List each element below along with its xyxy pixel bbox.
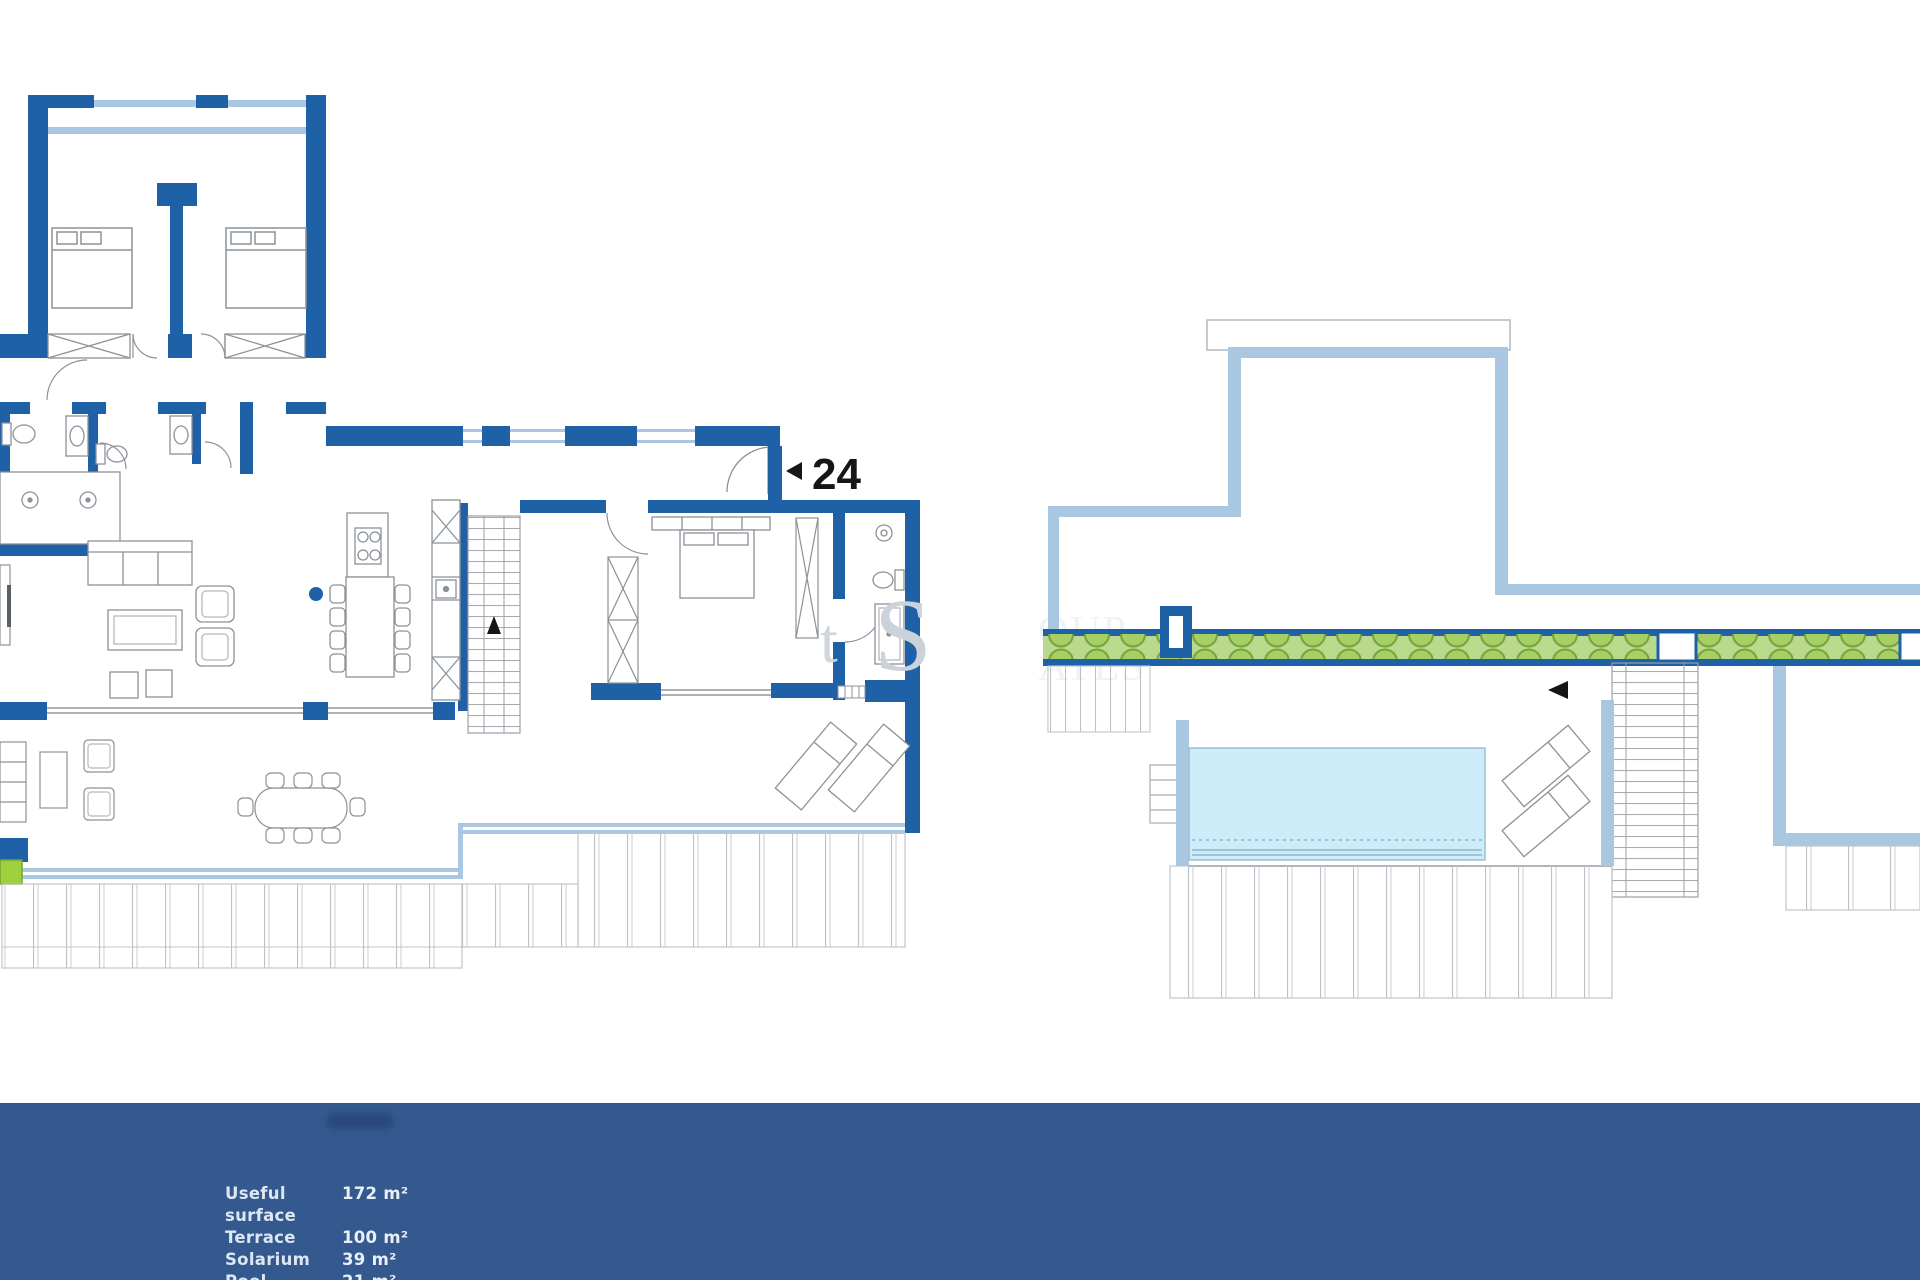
- entrance-door: [727, 446, 782, 502]
- terrace-daybed: [0, 742, 26, 822]
- solarium-parapet: [1207, 320, 1510, 350]
- solarium-right-wall: [1601, 700, 1614, 866]
- master-bed: [652, 517, 770, 598]
- wardrobe-right-bedroom: [225, 334, 305, 358]
- floor-plan-page: 24: [0, 0, 1920, 1280]
- bed-double-left: [52, 228, 132, 308]
- poufs: [110, 670, 172, 698]
- pool-side-wall: [1176, 720, 1189, 866]
- chimney-block: [1160, 606, 1192, 658]
- toilet-2: [96, 444, 127, 464]
- solarium-plan: [1043, 320, 1920, 998]
- stat-row-useful-surface: Useful surface 172 m²: [225, 1183, 408, 1227]
- footer-logo-watermark: [327, 1113, 393, 1129]
- watermark-fragment: t: [820, 605, 838, 676]
- stat-row-solarium: Solarium 39 m²: [225, 1249, 408, 1271]
- unit-number-label: 24: [812, 450, 861, 499]
- floor-plan-drawing: 24: [0, 0, 1920, 1103]
- solarium-right-enclosure: [1773, 666, 1920, 910]
- solarium-main-decking: [1170, 866, 1612, 998]
- left-floor-plan: 24: [0, 95, 920, 968]
- terrace-decking: [2, 833, 905, 968]
- footer-band: Useful surface 172 m² Terrace 100 m² Sol…: [0, 1103, 1920, 1280]
- surface-stats: Useful surface 172 m² Terrace 100 m² Sol…: [225, 1183, 408, 1280]
- coffee-table: [108, 610, 182, 650]
- hedge-opening: [1900, 632, 1920, 661]
- stat-label: Pool: [225, 1271, 342, 1280]
- tv-unit: [0, 565, 11, 645]
- kitchen-units: [432, 500, 460, 700]
- stat-label: Terrace: [225, 1227, 342, 1249]
- bed-double-right: [226, 228, 306, 308]
- terrace-side-table: [40, 752, 67, 808]
- hedge-opening: [1658, 632, 1696, 661]
- dining-table-indoor: [330, 577, 410, 677]
- solarium-left-deck: [1048, 666, 1150, 732]
- wardrobe-left-bedroom: [48, 334, 130, 358]
- solarium-loungers: [1502, 725, 1590, 856]
- pool-steps: [1150, 765, 1178, 823]
- hedge-planter-band: [1043, 606, 1920, 666]
- column-dot: [309, 587, 323, 601]
- toilet-1: [2, 423, 35, 445]
- stat-value: 21 m²: [342, 1271, 397, 1280]
- stat-value: 172 m²: [342, 1183, 408, 1227]
- solarium-outline-walls: [1048, 347, 1920, 637]
- entrance-direction-arrow-icon: [786, 462, 802, 480]
- sofa: [88, 541, 192, 585]
- terrace-armchairs: [84, 740, 114, 820]
- solarium-staircase: [1612, 663, 1698, 897]
- solarium-stairs-arrow-icon: [1548, 681, 1568, 699]
- bedroom-window-band: [28, 95, 326, 195]
- kitchen-north-wall: [326, 426, 780, 446]
- stat-row-pool: Pool 21 m²: [225, 1271, 408, 1280]
- master-wardrobe-right: [796, 518, 818, 638]
- double-vanity: [0, 472, 120, 544]
- master-wardrobe-left: [608, 557, 638, 683]
- stat-label: Solarium: [225, 1249, 342, 1271]
- watermark-fragment: S: [874, 578, 932, 693]
- armchairs: [196, 586, 234, 666]
- master-door-arc: [607, 513, 648, 554]
- sink-1: [66, 416, 88, 456]
- master-bath-sink: [876, 525, 892, 541]
- sink-2: [170, 416, 192, 454]
- kitchen-island: [347, 513, 388, 577]
- terrace-loungers: [775, 722, 909, 812]
- living-south-wall: [0, 702, 455, 720]
- stat-value: 100 m²: [342, 1227, 408, 1249]
- staircase-main: [468, 516, 520, 733]
- stat-row-terrace: Terrace 100 m²: [225, 1227, 408, 1249]
- stat-value: 39 m²: [342, 1249, 397, 1271]
- terrace-dining-set: [238, 773, 365, 843]
- stat-label: Useful surface: [225, 1183, 342, 1227]
- swimming-pool: [1189, 748, 1485, 860]
